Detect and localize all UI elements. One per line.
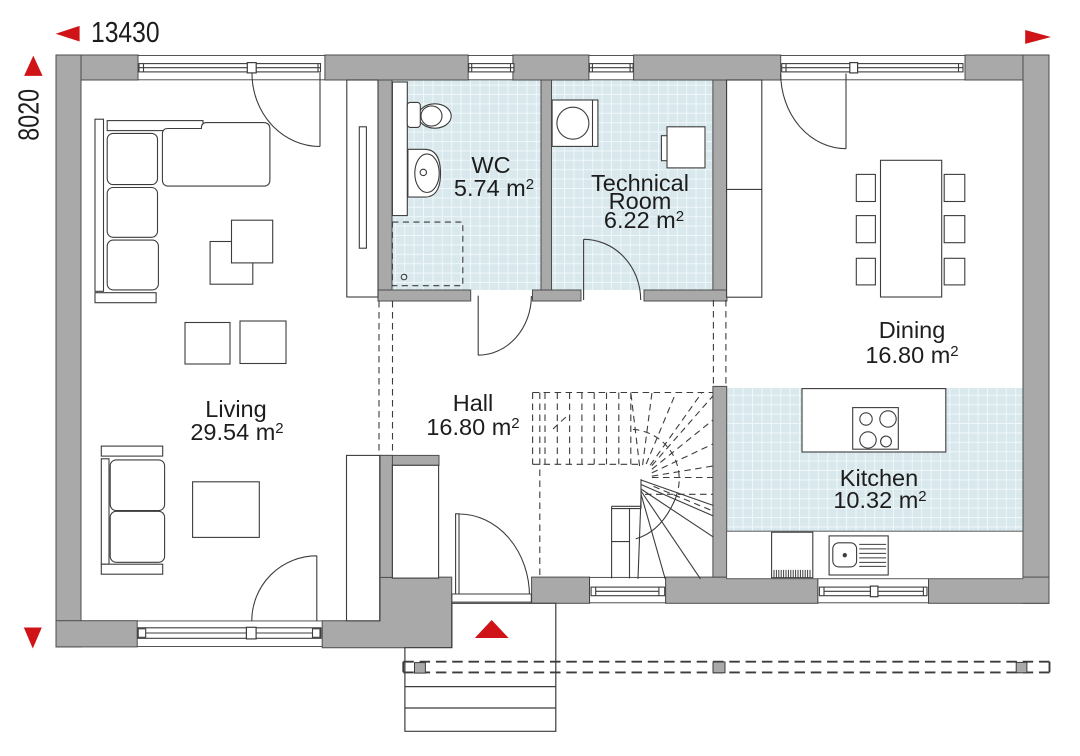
svg-text:Hall: Hall: [453, 390, 493, 416]
svg-text:16.80 m2: 16.80 m2: [865, 342, 958, 368]
svg-text:8020: 8020: [14, 89, 46, 141]
svg-text:29.54 m2: 29.54 m2: [190, 419, 283, 445]
svg-text:10.32 m2: 10.32 m2: [833, 487, 926, 513]
svg-text:16.80 m2: 16.80 m2: [426, 414, 519, 440]
svg-text:6.22 m2: 6.22 m2: [604, 207, 684, 233]
svg-text:5.74 m2: 5.74 m2: [454, 175, 534, 201]
svg-text:Dining: Dining: [879, 317, 946, 343]
svg-text:13430: 13430: [91, 17, 160, 49]
